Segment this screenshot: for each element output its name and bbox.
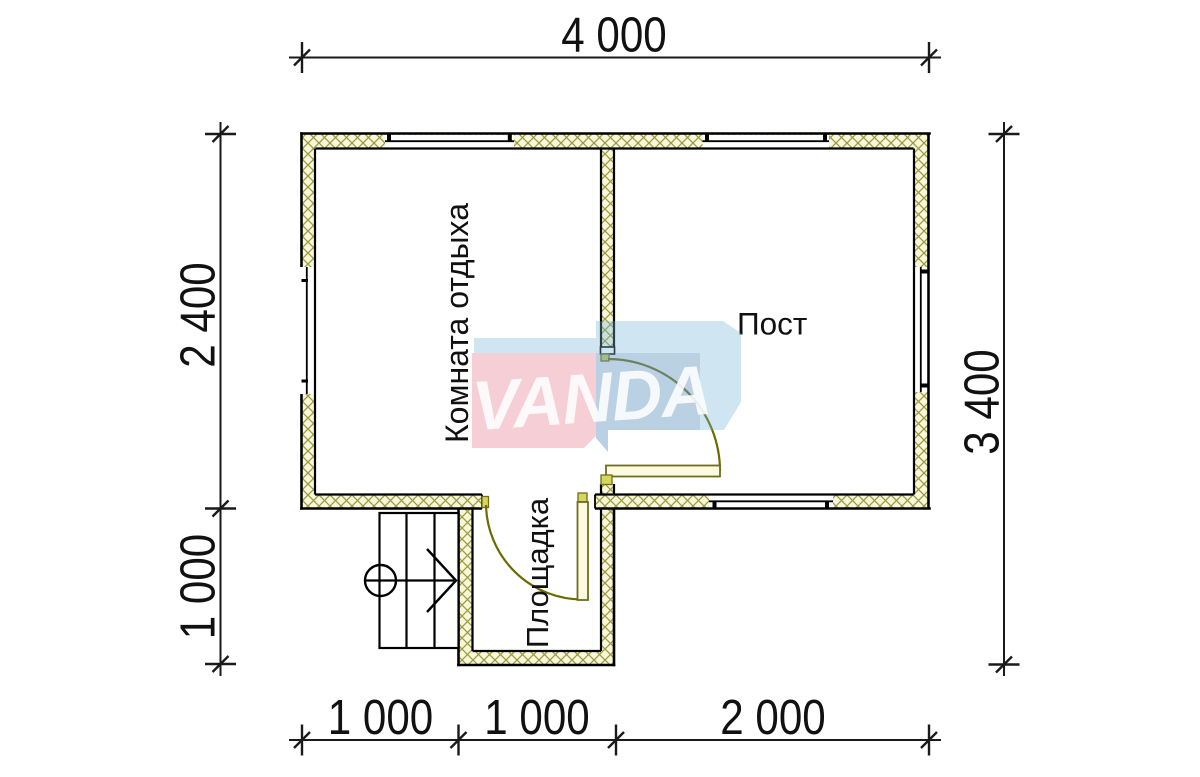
svg-text:2 000: 2 000 xyxy=(720,690,825,745)
svg-text:Площадка: Площадка xyxy=(520,497,555,648)
svg-text:VANDA: VANDA xyxy=(470,351,714,445)
svg-text:4 000: 4 000 xyxy=(561,8,666,63)
svg-text:Комната отдыха: Комната отдыха xyxy=(439,203,475,443)
svg-text:3 400: 3 400 xyxy=(955,349,1010,454)
svg-text:1 000: 1 000 xyxy=(484,690,589,745)
svg-text:1 000: 1 000 xyxy=(328,690,433,745)
svg-text:Пост: Пост xyxy=(737,306,807,342)
svg-text:2 400: 2 400 xyxy=(171,262,226,367)
svg-text:1 000: 1 000 xyxy=(171,534,226,639)
